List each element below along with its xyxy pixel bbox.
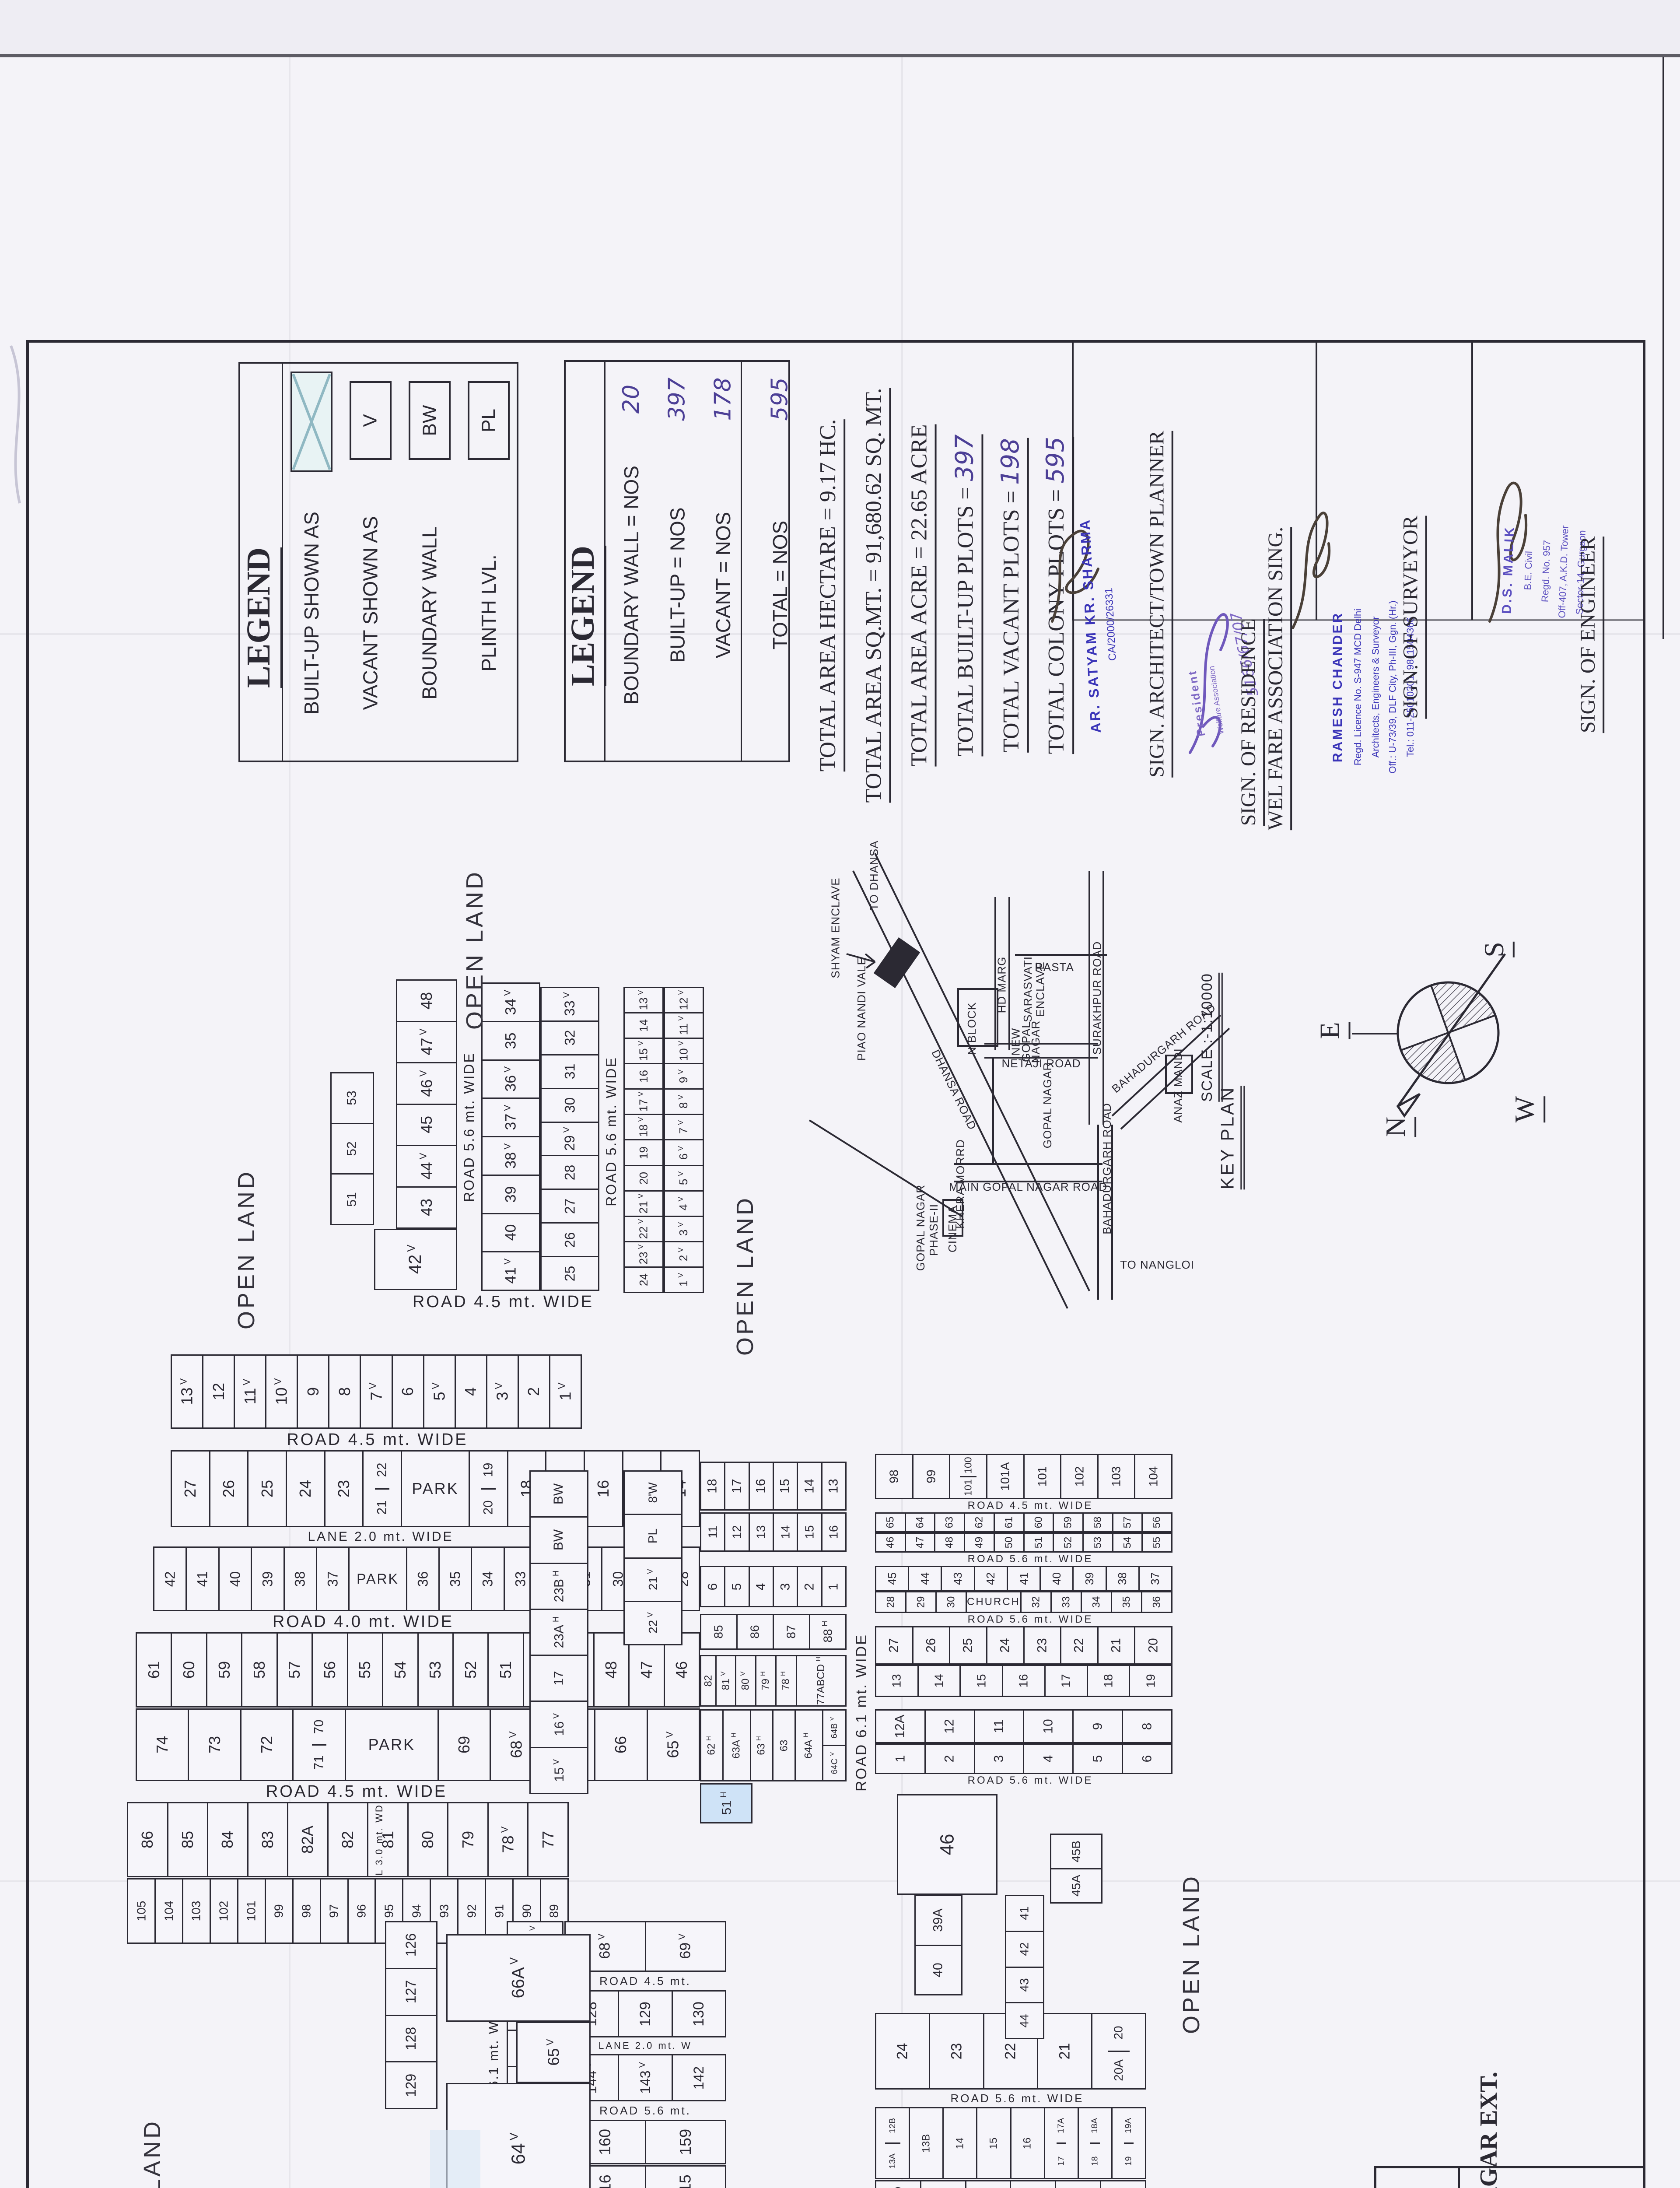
plot-cell: 43 [397, 1186, 456, 1228]
rotated-text: 40 [1050, 1572, 1064, 1585]
rotated-text: ROAD 5.6 mt. WIDE [603, 1056, 619, 1206]
rotated-text: 32 [1030, 1596, 1042, 1608]
plot-cell: 39A [916, 1896, 961, 1945]
compass-rose: E S N W [1339, 928, 1566, 1147]
rotated-text: 6 [1140, 1755, 1155, 1763]
rotated-text: 2V [677, 1248, 691, 1261]
plot-cell: 43 [1006, 1967, 1043, 2002]
road-width-label: ROAD 4.5 mt. WIDE [306, 1292, 700, 1312]
rotated-text: 56 [321, 1661, 339, 1679]
plot-strip: 1D1C1B256910 [875, 2180, 1146, 2188]
rotated-text: 53 [1092, 1537, 1104, 1549]
rotated-text: OPEN LAND [1178, 1874, 1205, 2034]
rotated-text: 3V [493, 1383, 511, 1401]
road-width-label: ROAD 4.0 mt. WIDE [157, 1612, 569, 1631]
legend-title: LEGEND [240, 495, 282, 740]
rotated-text: 2 [942, 1755, 957, 1763]
rotated-text: 5V [430, 1383, 448, 1401]
rotated-text: SIGN. ARCHITECT/TOWN PLANNER [1145, 431, 1173, 777]
rotated-text: 26 [562, 1232, 578, 1248]
rotated-text: 42V [406, 1245, 425, 1274]
rotated-text: 16 [1017, 1674, 1031, 1687]
plot-cell: 26 [209, 1452, 248, 1526]
rotated-text: 15 [987, 2137, 1000, 2149]
rotated-text: 7V [677, 1120, 691, 1134]
rotated-text: 14 [802, 1479, 817, 1493]
plot-cell: 127 [386, 1968, 436, 2015]
rotated-text: 5 [1090, 1755, 1105, 1763]
rotated-text: 21 [1056, 2043, 1073, 2060]
rotated-text: SIGN. OF ENGINEER [1576, 536, 1605, 733]
rotated-text: 49 [973, 1537, 985, 1549]
plot-cell: 27 [876, 1627, 912, 1663]
plot-cell: 6 [701, 1567, 724, 1606]
plot-cell: 128 [386, 2015, 436, 2062]
rotated-text: 3 [778, 1583, 793, 1590]
rotated-text: 72 [258, 1736, 276, 1753]
plot-strip: 4847V46V4544V43 [396, 979, 457, 1229]
plot-cell: 9V [665, 1063, 703, 1088]
rotated-text: 60 [1032, 1517, 1045, 1529]
plot-cell: 6V [665, 1139, 703, 1164]
plot-cell: 12V [665, 988, 703, 1012]
rotated-text: 44V [417, 1153, 436, 1179]
rotated-text: TO DHANSA [868, 840, 881, 910]
plot-cell: 8 [1122, 1711, 1171, 1742]
rotated-text: 54 [1121, 1537, 1134, 1549]
plot-cell: 7V [360, 1356, 391, 1427]
rotated-text: 66AV [508, 1957, 528, 1999]
legend-item-label: VACANT SHOWN AS [341, 477, 400, 749]
rotated-text: Architects, Engineers & Surveyor [1370, 616, 1381, 757]
plot-cell: 13V [172, 1356, 202, 1427]
compass-south-label: S [1483, 923, 1509, 976]
rotated-text: 24 [637, 1273, 650, 1286]
rotated-text: 65V [664, 1732, 682, 1758]
rotated-text: 88H [820, 1621, 835, 1643]
rotated-text: 28 [885, 1596, 897, 1608]
rotated-text: 20 [1112, 2026, 1126, 2039]
plot-cell: 46 [876, 1534, 905, 1551]
plot-cell: 51 [332, 1173, 373, 1224]
handwritten-value: 397 [951, 434, 979, 481]
rotated-text: 11V [241, 1379, 259, 1404]
road-width-label: ROAD 4.5 mt. WIDE [888, 1500, 1172, 1511]
rotated-text: 20 [618, 385, 644, 414]
plot-cell: 57 [1112, 1514, 1142, 1531]
plot-strip: 85868788H [700, 1614, 847, 1650]
rotated-text: 45 [417, 1116, 436, 1133]
plot-strip: 13V1415V1617V18V192021V22V23V24 [623, 987, 664, 1293]
plot-cell: 25 [542, 1256, 598, 1290]
rotated-text: RASTA [1035, 961, 1074, 974]
plot-cell: 16 [749, 1463, 773, 1509]
rotated-text: 16 [1022, 2137, 1034, 2149]
plot-cell: 1920 [469, 1452, 507, 1526]
rotated-text: SIGN. OF RESIDENCE [1237, 618, 1265, 825]
plot-subcell: 19 [1124, 2142, 1134, 2178]
rotated-text: 74 [153, 1736, 171, 1753]
plot-cell: 34 [471, 1548, 503, 1610]
rotated-text: 82 [702, 1675, 714, 1687]
rotated-text: 104 [1146, 1466, 1160, 1487]
rotated-text: 13B [920, 2134, 932, 2153]
plot-cell: 54 [382, 1634, 417, 1706]
rotated-text: BUILT-UP SHOWN AS [300, 512, 323, 715]
rotated-text: 58 [250, 1661, 269, 1679]
plot-strip: BWBW23BH23AH1716V15V [529, 1470, 588, 1794]
plot-cell: 1V [549, 1356, 581, 1427]
plot-cell: 159 [645, 2121, 725, 2163]
rotated-text: OPEN LAND [139, 2119, 166, 2188]
border-line [1374, 2166, 1376, 2188]
rotated-text: 53 [345, 1091, 360, 1105]
rotated-text: 86 [748, 1625, 762, 1638]
plot-strip: 39A40 [914, 1895, 962, 1995]
open-land-label: OPEN LAND [227, 1147, 265, 1352]
plot-cell: 23 [1023, 1627, 1060, 1663]
rotated-text: 142 [691, 2066, 707, 2089]
plot-cell: 79H [755, 1656, 775, 1705]
plot-cell: 3 [974, 1745, 1023, 1773]
rotated-text: WEL FARE ASSOCIATION SING. [1264, 526, 1292, 830]
rotated-text: 25 [258, 1480, 276, 1497]
rotated-text: 51H [718, 1792, 734, 1815]
plot-strip: 41424344 [1005, 1895, 1044, 2039]
road-width-label: ROAD 4.5 mt. WIDE [173, 1430, 582, 1449]
rotated-text: 41V [502, 1259, 519, 1284]
summary-value: 20 [609, 371, 653, 428]
rotated-text: 20A [1112, 2059, 1126, 2081]
plot-cell: 42 [1006, 1931, 1043, 1967]
plot-cell: 49 [964, 1534, 994, 1551]
plot-cell: 42V [375, 1230, 456, 1289]
rotated-text: 91 [492, 1904, 506, 1918]
rotated-text: 27 [181, 1480, 199, 1497]
legend-symbol-box [290, 372, 332, 472]
plot-cell: 130 [672, 1992, 725, 2036]
plot-cell: 55 [347, 1634, 382, 1706]
plot-cell: 23V [625, 1241, 662, 1266]
plot-strip: 7473727071PARK6968V67V6665V [136, 1708, 700, 1781]
plot-cell: 82A [287, 1803, 327, 1876]
plot-subcell: 13A [885, 2142, 900, 2178]
plot-cell: 58 [241, 1634, 276, 1706]
rotated-text: 69 [455, 1736, 473, 1753]
plot-subcell: 20 [481, 1488, 496, 1526]
plot-cell: 16 [1002, 1666, 1044, 1696]
rotated-text: 28 [562, 1165, 578, 1181]
plot-cell: 13 [876, 1666, 917, 1696]
reserved-area-label: CHURCH [967, 1596, 1020, 1608]
rotated-text: SIGN. OF SURVEYOR [1399, 515, 1427, 719]
border-line [1374, 2166, 1645, 2168]
plot-cell: 56 [311, 1634, 346, 1706]
rotated-text: Off-407, A.K.D. Tower [1556, 526, 1571, 619]
plot-cell: 82 [327, 1803, 367, 1876]
rotated-text: 4V [677, 1197, 691, 1210]
road-width-label: ROAD 5.6 mt. WIDE [888, 1775, 1172, 1786]
plot-cell: 48 [397, 981, 456, 1021]
plot-cell: 53 [417, 1634, 452, 1706]
rotated-text: 92 [465, 1904, 479, 1918]
plot-cell: 21 [1097, 1627, 1134, 1663]
plot-cell: 37 [1138, 1567, 1171, 1590]
rotated-text: 38 [292, 1571, 308, 1587]
rotated-text: 39 [1083, 1572, 1096, 1585]
plot-strip: 9899100101101A101102103104 [875, 1454, 1172, 1499]
rotated-text: 17V [637, 1092, 650, 1112]
open-land-label: OPEN LAND [726, 1173, 764, 1378]
rotated-text: TO NANGLOI [1120, 1258, 1194, 1272]
plot-cell: 53 [1082, 1534, 1112, 1551]
summary-row: BOUNDARY WALL = NOS [609, 419, 653, 751]
plot-cell: 38 [283, 1548, 316, 1610]
rotated-text: 9 [1090, 1723, 1105, 1730]
plot-cell: 44V [397, 1145, 456, 1186]
rotated-text: 6 [399, 1387, 417, 1396]
rotated-text: 13A [888, 2153, 898, 2168]
plot-strip: 2726252423222120 [875, 1626, 1172, 1665]
rotated-text: CINEMA [946, 1205, 960, 1252]
plot-cell: 64 [905, 1514, 934, 1531]
rotated-text: 129 [637, 2002, 654, 2027]
legend-item-label: BOUNDARY WALL [400, 477, 459, 749]
reserved-area-label: PARK [357, 1571, 399, 1587]
plot-cell: 63H [750, 1711, 772, 1780]
plot-cell: 6 [1010, 2181, 1055, 2188]
plot-cell: 84 [207, 1803, 247, 1876]
rotated-text: 104 [162, 1901, 176, 1922]
rotated-text: 1D [891, 2186, 905, 2188]
road-width-label: ROAD 4.5 mt. WIDE [144, 1782, 569, 1801]
plot-cell: 126 [386, 1922, 436, 1968]
plot-strip: 45B45A [1050, 1834, 1102, 1904]
rotated-text: 101A [998, 1462, 1012, 1490]
plot-cell: 18A18 [1078, 2108, 1111, 2178]
plot-cell: 5 [724, 1567, 748, 1606]
rotated-text: 34 [1090, 1596, 1102, 1608]
rotated-text: GOPAL NAGAR [1041, 1062, 1055, 1148]
rotated-text: 24 [998, 1638, 1013, 1652]
rotated-text: 37 [325, 1571, 341, 1587]
rotated-text: 78V [499, 1827, 517, 1853]
plot-strip: 12B13A13B14151617A1718A1819A19 [875, 2107, 1146, 2179]
rotated-text: 14 [637, 1019, 650, 1032]
rotated-text: LEGEND [240, 547, 282, 688]
rotated-text: 103 [1109, 1466, 1123, 1487]
rotated-text: 22 [375, 1462, 390, 1477]
rotated-text: RAMESH CHANDER [1330, 612, 1345, 762]
rotated-text: 50 [1003, 1537, 1015, 1549]
plot-cell: 96 [347, 1879, 375, 1943]
rotated-text: 12V [677, 990, 690, 1010]
rotated-text: 35 [447, 1571, 463, 1587]
plot-strip: 8281V80V79H78H77ABCDH [700, 1655, 847, 1707]
rotated-text: 38V [502, 1143, 519, 1168]
plot-cell: 18 [1087, 1666, 1129, 1696]
road-width-label: ROAD 5.6 mt. WIDE [888, 2090, 1146, 2106]
plot-subcell: 64CV [823, 1745, 845, 1780]
plot-cell: 28 [876, 1592, 905, 1612]
plot-cell: 20 [625, 1165, 662, 1190]
plot-cell: 27 [172, 1452, 209, 1526]
rotated-text: 14 [932, 1674, 946, 1687]
plot-cell: 15 [976, 2108, 1010, 2178]
plot-cell: 43 [941, 1567, 973, 1590]
border-line [26, 340, 1645, 343]
rotated-text: 77ABCDH [815, 1657, 827, 1705]
plot-strip: 654321 [700, 1566, 847, 1607]
plot-cell: 34 [1081, 1592, 1111, 1612]
rotated-text: 4 [1041, 1755, 1056, 1763]
plot-cell: 45 [397, 1104, 456, 1145]
rotated-text: 46 [936, 1834, 958, 1855]
rotated-text: CA/2000/26331 [1103, 588, 1119, 661]
rotated-text: 2 [525, 1387, 543, 1396]
rotated-text: ROAD 5.6 mt. WIDE [461, 1052, 477, 1202]
plot-cell: 20 [1134, 1627, 1171, 1663]
rotated-text: 59 [1062, 1517, 1074, 1529]
plot-subcell: 22 [375, 1452, 389, 1488]
plot-subcell: 71 [312, 1744, 326, 1780]
rotated-text: 3V [677, 1222, 691, 1236]
legend-symbol-box: V [350, 381, 392, 460]
plot-cell: 3V [486, 1356, 518, 1427]
plot-subcell: 21 [375, 1488, 389, 1526]
rotated-text: 1V [677, 1273, 691, 1287]
rotated-text: 126 [403, 1933, 419, 1957]
rotated-text: 101 [245, 1901, 259, 1922]
rotated-text: 18A [1090, 2118, 1100, 2133]
rotated-text: L 3.0 mt. WD [374, 1804, 385, 1876]
rotated-text: 27 [562, 1198, 578, 1214]
plot-cell: 12 [724, 1514, 748, 1550]
plot-cell: 64BV64CV [822, 1711, 845, 1780]
rotated-text: 51 [497, 1661, 515, 1679]
plot-cell: 28 [542, 1155, 598, 1189]
summary-row: BUILT-UP = NOS [655, 419, 699, 751]
plot-cell: 9 [1072, 1711, 1122, 1742]
rotated-text: 11 [706, 1525, 720, 1538]
plot-cell: 41 [1006, 1896, 1043, 1931]
plot-strip: 454443424140393837 [875, 1566, 1172, 1591]
plot-cell: 104 [1134, 1455, 1171, 1498]
rotated-text: 4 [754, 1583, 769, 1590]
rotated-text: 79 [459, 1831, 477, 1848]
plot-cell: 16V [531, 1701, 587, 1746]
plot-cell: 5 [965, 2181, 1010, 2188]
plot-cell: 56 [1141, 1514, 1171, 1531]
rotated-text: TOTAL AREA SQ.MT. = 91,680.62 SQ. MT. [861, 388, 891, 803]
rotated-text: 38 [1116, 1572, 1129, 1585]
plot-cell: 81V [715, 1656, 735, 1705]
plot-cell: 44 [908, 1567, 941, 1590]
rotated-text: 17 [552, 1671, 567, 1686]
plot-cell: 12 [202, 1356, 234, 1427]
plot-cell: 57 [276, 1634, 311, 1706]
rotated-text: 18 [705, 1479, 720, 1493]
rotated-text: BW [419, 405, 441, 436]
plot-cell: 16 [821, 1514, 845, 1550]
plot-strip: 13141516171819 [875, 1665, 1172, 1697]
rotated-text: 20 [481, 1501, 496, 1515]
rotated-text: 34V [502, 989, 519, 1015]
plot-cell: 18 [701, 1463, 724, 1509]
plot-cell: 48 [934, 1534, 964, 1551]
plot-cell: 14 [917, 1666, 960, 1696]
rotated-text: 63 [778, 1739, 790, 1751]
plot-cell: 10 [1100, 2181, 1145, 2188]
rotated-text: 57 [285, 1661, 304, 1679]
rotated-text: 53 [426, 1661, 444, 1679]
rotated-text: 97 [327, 1904, 341, 1918]
summary-value: 397 [655, 371, 699, 428]
rotated-text: 12 [942, 1719, 957, 1733]
plot-cell: 33 [1050, 1592, 1081, 1612]
rotated-text: 79H [760, 1671, 772, 1690]
rotated-text: 86 [138, 1831, 157, 1848]
rotated-text: ANAZ MANDI [1172, 1048, 1185, 1122]
rotated-text: 18 [1101, 1674, 1115, 1687]
rotated-text: 64V [507, 2132, 530, 2164]
plot-cell: 59 [1053, 1514, 1082, 1531]
rotated-text: 12 [210, 1383, 228, 1400]
plot-strip: 8685848382A8281807978V77 [127, 1802, 569, 1877]
plot-cell: 11V [665, 1012, 703, 1038]
plot-cell: 47V [397, 1021, 456, 1062]
plot-subcell: 70 [312, 1710, 326, 1744]
rotated-text: 20 [637, 1172, 650, 1185]
rotated-text: 45B [1069, 1841, 1083, 1862]
plot-cell: 15 [773, 1463, 797, 1509]
compass-west-label: W [1514, 1083, 1540, 1136]
plot-cell: 36 [1141, 1592, 1171, 1612]
plot-cell: 21V [625, 1190, 662, 1216]
plot-cell: 26 [912, 1627, 949, 1663]
plot-cell: 103 [1097, 1455, 1134, 1498]
rotated-text: 33 [512, 1571, 528, 1587]
rotated-text: 17 [1056, 2156, 1066, 2166]
plot-cell: 10 [1023, 1711, 1072, 1742]
signature-label: WEL FARE ASSOCIATION SING. [1262, 503, 1294, 853]
rotated-text: 27 [887, 1638, 902, 1652]
rotated-text: 95 [382, 1904, 396, 1918]
plot-cell: 9 [297, 1356, 328, 1427]
plot-cell: 2 [797, 1567, 821, 1606]
rotated-text: PL [478, 409, 500, 432]
rotated-text: BW [551, 1483, 566, 1504]
plot-cell: 98 [292, 1879, 320, 1943]
plot-cell: 102 [1060, 1455, 1097, 1498]
stat-line: TOTAL AREA HECTARE = 9.17 HC. [808, 346, 852, 845]
rotated-text: 100 [962, 1457, 974, 1474]
plot-cell: 65V [647, 1710, 699, 1780]
plot-subcell: 18A [1087, 2108, 1102, 2142]
signature-divider [1471, 340, 1473, 620]
plot-subcell: 12B [885, 2108, 900, 2142]
plot-cell: 50 [994, 1534, 1023, 1551]
stamp-line: Architects, Engineers & Surveyor [1368, 499, 1383, 875]
plot-cell: 21 [1037, 2014, 1091, 2088]
border-line [1643, 340, 1645, 2188]
road-width-label: LANE 2.0 mt. WIDE [184, 1528, 577, 1546]
stat-line: TOTAL VACANT PLOTS = 198 [990, 346, 1034, 845]
plot-cell: 72 [240, 1710, 292, 1780]
rotated-text: 16 [827, 1525, 841, 1539]
stat-line: TOTAL BUILT-UP PLOTS = 397 [945, 346, 989, 845]
plot-cell: 44 [1006, 2002, 1043, 2038]
